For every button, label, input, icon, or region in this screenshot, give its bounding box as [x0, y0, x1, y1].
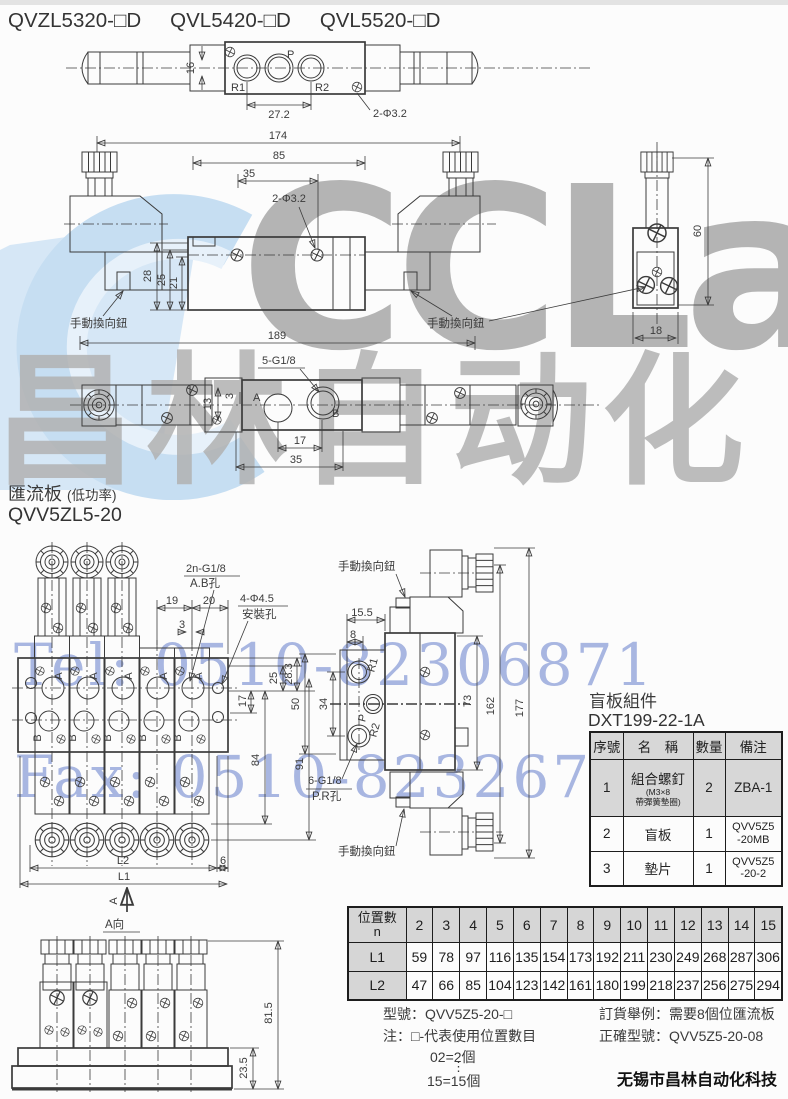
l1-label: L1 — [348, 942, 406, 971]
l1-value: 287 — [728, 942, 755, 971]
port-a-col5: A — [193, 672, 205, 680]
catalog-page: CCLair 昌林自动化 Tel: 0510-82306871 Fax: 051… — [0, 0, 788, 1099]
l1-value: 192 — [594, 942, 621, 971]
pos-n: 15 — [755, 907, 782, 942]
pos-n: 9 — [594, 907, 621, 942]
l1-value: 59 — [406, 942, 433, 971]
manual-knob-label-bottom: 手動換向鈕 — [338, 844, 396, 858]
model-name-2: QVL5420-□D — [170, 9, 291, 33]
dim-174: 174 — [269, 130, 287, 142]
blind-plate-row-2: 2 盲板 1 QVV5Z5 -20MB — [590, 816, 782, 851]
dim-189: 189 — [268, 330, 286, 342]
l1-value: 135 — [513, 942, 540, 971]
l1-value: 306 — [755, 942, 782, 971]
port-a-col3: A — [123, 672, 135, 680]
port-a-col2: A — [88, 672, 100, 680]
cell-qty: 1 — [693, 816, 725, 851]
ordering-example-line: 訂貨舉例：需要8個位匯流板 — [599, 1006, 775, 1022]
dim-73: 73 — [462, 695, 474, 707]
header-qty: 數量 — [693, 732, 725, 759]
l1-value: 211 — [621, 942, 648, 971]
l1-value: 173 — [567, 942, 594, 971]
manual-knob-label-right: 手動換向鈕 — [427, 316, 485, 330]
cell-qty: 1 — [693, 851, 725, 886]
dim-20: 20 — [203, 595, 215, 607]
model-title-row: QVZL5320-□D QVL5420-□D QVL5520-□D — [8, 9, 478, 33]
header-seq: 序號 — [590, 732, 623, 759]
l2-value: 161 — [567, 971, 594, 1000]
pos-n: 8 — [567, 907, 594, 942]
cell-name: 組合螺釘 (M3×8 帶彈簧墊圈) — [623, 759, 693, 816]
l2-value: 85 — [460, 971, 487, 1000]
dim-3-bottom: 3 — [224, 393, 236, 399]
view-arrow-a: A — [108, 897, 120, 905]
l2-value: 237 — [674, 971, 701, 1000]
part-name-sub: (M3×8 帶彈簧墊圈) — [624, 788, 693, 808]
pos-n: 7 — [540, 907, 567, 942]
dim-18: 18 — [650, 325, 662, 337]
pos-n: 10 — [621, 907, 648, 942]
l2-value: 123 — [513, 971, 540, 1000]
header-name: 名 稱 — [623, 732, 693, 759]
ordering-model-line: 型號：QVV5Z5-20-□ — [383, 1006, 512, 1022]
cell-remark: ZBA-1 — [725, 759, 782, 816]
callout-ab-holes: A.B孔 — [190, 577, 221, 590]
dim-l1: L1 — [118, 871, 130, 883]
l2-value: 142 — [540, 971, 567, 1000]
l1-value: 268 — [701, 942, 728, 971]
pos-n: 13 — [701, 907, 728, 942]
blind-plate-row-1: 1 組合螺釘 (M3×8 帶彈簧墊圈) 2 ZBA-1 — [590, 759, 782, 816]
l2-value: 275 — [728, 971, 755, 1000]
dim-25-manifold: 25 — [268, 672, 280, 684]
dim-19: 19 — [166, 595, 178, 607]
dim-81-5: 81.5 — [263, 1002, 275, 1023]
dim-13: 13 — [202, 398, 214, 410]
position-dimension-table: 位置數 n 2 3 4 5 6 7 8 9 10 11 12 13 14 15 … — [347, 906, 783, 1001]
cell-qty: 2 — [693, 759, 725, 816]
cell-seq: 1 — [590, 759, 623, 816]
callout-mount-holes: 安裝孔 — [242, 607, 277, 621]
port-b-col4: B — [137, 734, 149, 741]
callout-2-phi3-2-top: 2-Φ3.2 — [373, 108, 407, 120]
ordering-correct-model-line: 正確型號：QVV5Z5-20-08 — [599, 1028, 763, 1044]
manual-knob-label-top: 手動換向鈕 — [338, 559, 396, 573]
l1-value: 230 — [648, 942, 675, 971]
l2-value: 66 — [433, 971, 460, 1000]
l1-value: 78 — [433, 942, 460, 971]
pos-n: 14 — [728, 907, 755, 942]
l2-value: 256 — [701, 971, 728, 1000]
l1-value: 116 — [487, 942, 514, 971]
part-name: 組合螺釘 — [624, 768, 693, 788]
pos-n: 6 — [513, 907, 540, 942]
blind-plate-row-3: 3 墊片 1 QVV5Z5 -20-2 — [590, 851, 782, 886]
l2-value: 199 — [621, 971, 648, 1000]
port-b-col2: B — [67, 734, 79, 741]
a-direction-view-drawing: A向 81.5 23.5 — [12, 917, 284, 1092]
port-b-col1: B — [32, 734, 44, 741]
side-view-drawing: 60 18 — [633, 142, 714, 344]
model-name-3: QVL5520-□D — [320, 9, 441, 33]
cell-seq: 2 — [590, 816, 623, 851]
dim-27-2: 27.2 — [268, 109, 289, 121]
blind-plate-title: 盲板組件 — [589, 687, 657, 712]
dim-3-manifold: 3 — [179, 619, 185, 631]
port-label-r1-side: R1 — [365, 657, 380, 674]
dim-85: 85 — [273, 150, 285, 162]
dim-50: 50 — [290, 698, 302, 710]
port-label-r2: R2 — [315, 82, 329, 94]
l2-value: 104 — [487, 971, 514, 1000]
dim-91: 91 — [294, 758, 306, 770]
dim-17-manifold: 17 — [237, 695, 249, 707]
dim-28-3: 28.3 — [283, 663, 295, 684]
a-view-label: A向 — [105, 917, 124, 931]
dim-35-bottom: 35 — [290, 454, 302, 466]
port-label-r2-side: R2 — [367, 722, 382, 739]
ordering-range-end: 15=15個 — [427, 1073, 480, 1089]
manifold-side-drawing: 手動換向鈕 R1 P R2 15.5 — [290, 548, 535, 858]
port-b-col5: B — [172, 734, 184, 741]
port-label-a: A — [253, 392, 261, 404]
l2-value: 218 — [648, 971, 675, 1000]
port-label-p: P — [287, 49, 294, 61]
section-subtitle: (低功率) — [67, 488, 117, 503]
top-view-drawing: R1 P R2 16 27.2 2-Φ3.2 — [66, 42, 592, 121]
callout-pr-holes: P.R孔 — [312, 790, 342, 803]
callout-5-g18: 5-G1/8 — [262, 355, 296, 367]
port-label-b: B — [332, 408, 339, 420]
position-header-row: 位置數 n 2 3 4 5 6 7 8 9 10 11 12 13 14 15 — [348, 907, 782, 942]
header-remark: 備注 — [725, 732, 782, 759]
port-a-col1: A — [53, 672, 65, 680]
dim-162: 162 — [485, 697, 497, 715]
dim-25-front: 25 — [156, 274, 168, 286]
dim-28: 28 — [142, 270, 154, 282]
blind-plate-part-number: DXT199-22-1A — [588, 710, 705, 731]
l2-value: 180 — [594, 971, 621, 1000]
cell-seq: 3 — [590, 851, 623, 886]
dim-23-5: 23.5 — [238, 1057, 250, 1078]
dim-8: 8 — [350, 629, 356, 641]
dim-84: 84 — [250, 754, 262, 766]
cell-name: 盲板 — [623, 816, 693, 851]
port-a-col4: A — [158, 672, 170, 680]
l1-row: L1 59 78 97 116 135 154 173 192 211 230 … — [348, 942, 782, 971]
port-label-r1: R1 — [231, 82, 245, 94]
l1-value: 97 — [460, 942, 487, 971]
port-b-col3: B — [102, 734, 114, 741]
dim-l2: L2 — [117, 855, 129, 867]
header-position-count: 位置數 n — [348, 907, 406, 942]
section-title: 匯流板 — [8, 484, 62, 504]
header-line2: n — [349, 925, 406, 939]
cell-remark: QVV5Z5 -20-2 — [725, 851, 782, 886]
callout-4-phi45: 4-Φ4.5 — [240, 593, 274, 605]
pos-n: 3 — [433, 907, 460, 942]
pos-n: 2 — [406, 907, 433, 942]
pos-n: 4 — [460, 907, 487, 942]
manual-knob-label-left: 手動換向鈕 — [70, 316, 128, 330]
pos-n: 11 — [648, 907, 675, 942]
port-label-p-side: P — [356, 713, 369, 723]
callout-2-phi3-2-front: 2-Φ3.2 — [272, 193, 306, 205]
company-name: 无锡市昌林自动化科技 — [617, 1066, 777, 1090]
cell-remark: QVV5Z5 -20MB — [725, 816, 782, 851]
l2-row: L2 47 66 85 104 123 142 161 180 199 218 … — [348, 971, 782, 1000]
blind-plate-header-row: 序號 名 稱 數量 備注 — [590, 732, 782, 759]
callout-6-g18: 6-G1/8 — [308, 775, 342, 787]
bottom-view-drawing: A B 5-G1/8 13 3 17 35 — [70, 355, 600, 471]
l2-value: 294 — [755, 971, 782, 1000]
section-heading: 匯流板 (低功率) — [8, 480, 117, 506]
dim-60: 60 — [692, 225, 704, 237]
dim-177: 177 — [514, 699, 526, 717]
dim-6: 6 — [220, 855, 226, 867]
dim-34: 34 — [318, 698, 330, 710]
model-name-1: QVZL5320-□D — [8, 9, 141, 33]
blind-plate-parts-table: 序號 名 稱 數量 備注 1 組合螺釘 (M3×8 帶彈簧墊圈) 2 ZBA-1… — [589, 731, 783, 887]
l1-value: 154 — [540, 942, 567, 971]
manifold-model-number: QVV5ZL5-20 — [8, 504, 122, 527]
l2-label: L2 — [348, 971, 406, 1000]
ordering-note-line: 注：□-代表使用位置數目 — [383, 1028, 536, 1044]
dim-15-5: 15.5 — [351, 607, 372, 619]
front-view-drawing: 174 85 35 2-Φ3.2 — [64, 130, 645, 350]
callout-2n-g18: 2n-G1/8 — [186, 563, 226, 575]
pos-n: 12 — [674, 907, 701, 942]
dim-16: 16 — [185, 62, 197, 74]
l1-value: 249 — [674, 942, 701, 971]
header-line1: 位置數 — [349, 911, 406, 925]
dim-21: 21 — [168, 277, 180, 289]
l2-value: 47 — [406, 971, 433, 1000]
manifold-front-drawing: A A A A A B B B B B 2n-G1/8 A.B孔 19 20 3… — [12, 542, 316, 912]
dim-35-front: 35 — [243, 168, 255, 180]
cell-name: 墊片 — [623, 851, 693, 886]
dim-17-bottom: 17 — [294, 435, 306, 447]
pos-n: 5 — [487, 907, 514, 942]
